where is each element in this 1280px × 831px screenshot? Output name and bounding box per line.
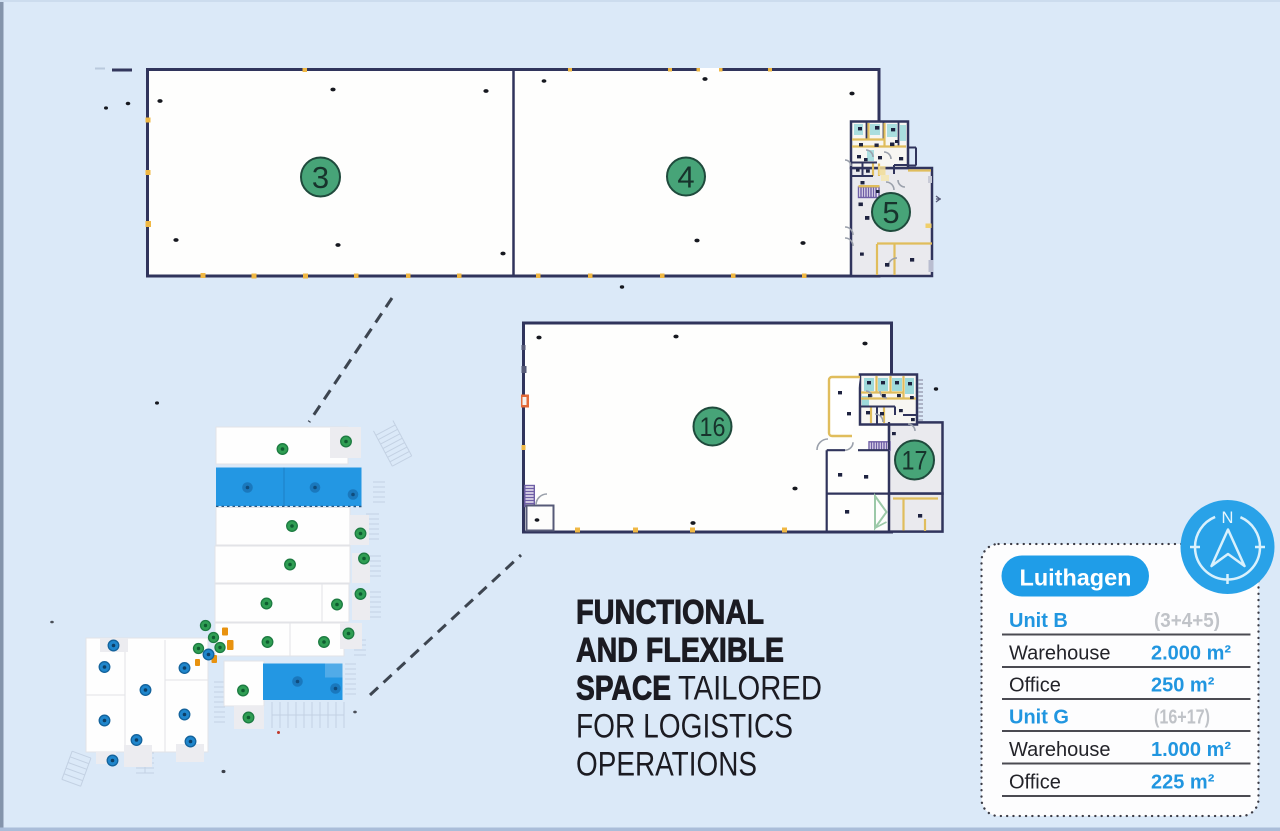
- svg-text:Warehouse: Warehouse: [1009, 739, 1111, 761]
- svg-text:(3+4+5): (3+4+5): [1154, 610, 1220, 632]
- svg-text:TAILORED: TAILORED: [678, 670, 822, 708]
- svg-text:250 m²: 250 m²: [1151, 675, 1215, 697]
- svg-text:2.000 m²: 2.000 m²: [1151, 643, 1231, 665]
- svg-text:3: 3: [312, 160, 329, 195]
- svg-text:225 m²: 225 m²: [1151, 772, 1215, 794]
- svg-text:FUNCTIONAL: FUNCTIONAL: [576, 594, 764, 632]
- svg-text:N: N: [1222, 509, 1234, 527]
- svg-text:OPERATIONS: OPERATIONS: [576, 746, 757, 784]
- svg-text:Unit B: Unit B: [1009, 610, 1068, 632]
- svg-text:Warehouse: Warehouse: [1009, 643, 1111, 665]
- svg-text:AND FLEXIBLE: AND FLEXIBLE: [576, 632, 784, 670]
- svg-text:SPACE: SPACE: [576, 670, 671, 708]
- svg-text:16: 16: [700, 412, 726, 442]
- svg-text:1.000 m²: 1.000 m²: [1151, 739, 1231, 761]
- svg-text:Unit G: Unit G: [1009, 707, 1069, 729]
- svg-text:Office: Office: [1009, 675, 1061, 697]
- svg-text:17: 17: [902, 446, 928, 476]
- svg-text:Luithagen: Luithagen: [1020, 565, 1132, 591]
- svg-text:4: 4: [677, 160, 694, 195]
- svg-text:FOR LOGISTICS: FOR LOGISTICS: [576, 708, 793, 746]
- svg-text:Office: Office: [1009, 772, 1061, 794]
- svg-text:5: 5: [882, 195, 899, 230]
- svg-text:(16+17): (16+17): [1154, 707, 1210, 729]
